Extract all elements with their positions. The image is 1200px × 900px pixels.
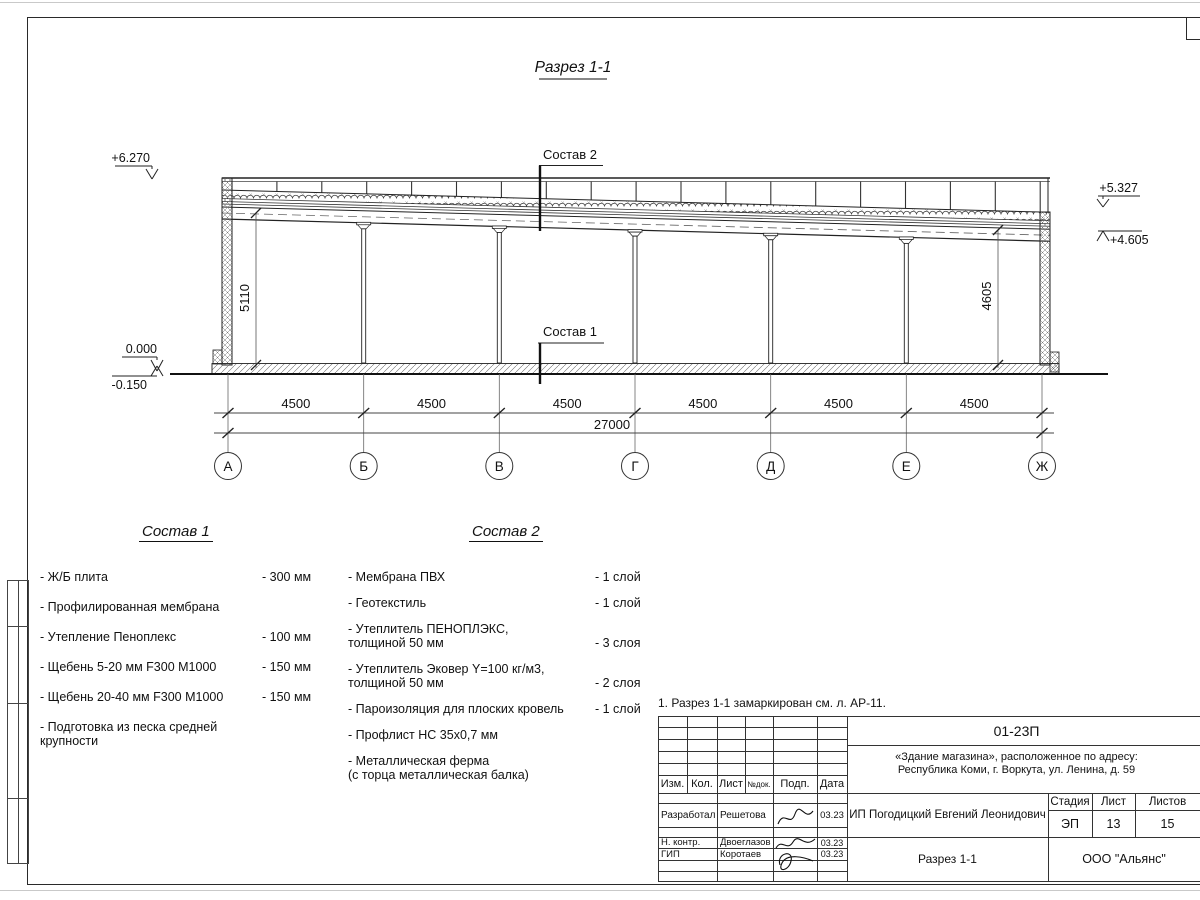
signature-developer: [778, 809, 813, 824]
tb-date-ncontr: 03.23: [817, 837, 847, 848]
tb-header-data: Дата: [817, 775, 847, 793]
item-value: - 150 мм: [262, 660, 311, 674]
total-dim: 27000: [594, 417, 630, 432]
column-capital: [628, 230, 642, 233]
axis-letter: Г: [631, 459, 639, 474]
tb-header-kol: Кол.: [687, 775, 717, 793]
left-wall: [222, 178, 232, 365]
list-item: - Металлическая ферма (с торца металличе…: [348, 754, 660, 782]
item-value: - 1 слой: [595, 702, 641, 716]
item-value: - 2 слоя: [595, 676, 640, 690]
item-value: - 3 слоя: [595, 636, 640, 650]
list-item: - Мембрана ПВХ- 1 слой: [348, 570, 660, 584]
line: [1097, 231, 1103, 241]
span-dim: 4500: [824, 396, 853, 411]
sostav2-callout: Состав 2: [543, 147, 597, 162]
list-item: - Подготовка из песка средней крупности: [40, 720, 330, 748]
line: [157, 366, 163, 376]
tb-doc-number: 01-23П: [847, 716, 1186, 745]
tb-object: «Здание магазина», расположенное по адре…: [847, 751, 1186, 791]
section-linework: Разрез 1-145004500450045004500450027000А…: [111, 59, 1148, 480]
span-dim: 4500: [688, 396, 717, 411]
column-capital-taper: [900, 239, 912, 243]
column-capital-taper: [493, 228, 505, 232]
title-block: Изм. Кол. Лист №док. Подп. Дата Разработ…: [658, 716, 1200, 882]
elevation: +4.605: [1110, 233, 1149, 247]
column: [362, 229, 366, 363]
list-item: - Утеплитель ПЕНОПЛЭКС, толщиной 50 мм- …: [348, 622, 660, 650]
list-item: - Утеплитель Эковер Y=100 кг/м3, толщино…: [348, 662, 660, 690]
item-name: - Утеплитель Эковер Y=100 кг/м3, толщино…: [348, 662, 595, 690]
tb-date-gip: 03.23: [817, 848, 847, 860]
tb-name-developer: Решетова: [717, 803, 776, 827]
elevation: 0.000: [126, 342, 157, 356]
tb-client: ИП Погодицкий Евгений Леонидович: [847, 793, 1048, 837]
left-wall-footing: [213, 350, 222, 364]
tb-section-name: Разрез 1-1: [847, 837, 1048, 881]
column: [497, 232, 501, 363]
line: [1097, 199, 1103, 207]
sostav1-callout: Состав 1: [543, 324, 597, 339]
height-dim: 5110: [237, 284, 252, 312]
column-capital-taper: [629, 232, 641, 236]
item-name: - Пароизоляция для плоских кровель: [348, 702, 595, 716]
tb-role-gip: ГИП: [658, 848, 720, 860]
list-item: - Профлист НС 35х0,7 мм: [348, 728, 660, 742]
height-dim: 4605: [979, 282, 994, 311]
tb-stage-label: Стадия: [1048, 793, 1092, 810]
axis-letter: Д: [766, 459, 775, 474]
list-item: - Пароизоляция для плоских кровель- 1 сл…: [348, 702, 660, 716]
axis-letter: Б: [359, 459, 368, 474]
list-item: - Утепление Пеноплекс- 100 мм: [40, 630, 330, 644]
item-value: - 300 мм: [262, 570, 311, 584]
drawing-note: 1. Разрез 1-1 замаркирован см. л. АР-11.: [658, 696, 886, 710]
tb-header-list: Лист: [717, 775, 745, 793]
floor-slab: [212, 364, 1059, 374]
column: [769, 240, 773, 363]
item-value: - 100 мм: [262, 630, 311, 644]
sostav1-heading: Состав 1: [139, 523, 213, 542]
item-name: - Утеплитель ПЕНОПЛЭКС, толщиной 50 мм: [348, 622, 595, 650]
item-name: - Щебень 20-40 мм F300 М1000: [40, 690, 262, 704]
signature-ncontr: [776, 839, 815, 848]
list-item: - Щебень 5-20 мм F300 М1000- 150 мм: [40, 660, 330, 674]
line: [146, 169, 152, 179]
column: [904, 243, 908, 363]
item-name: - Ж/Б плита: [40, 570, 262, 584]
axis-letter: Е: [902, 459, 911, 474]
tb-sheets-value: 15: [1135, 810, 1200, 837]
column-capital: [492, 226, 506, 229]
axis-letter: В: [495, 459, 504, 474]
list-item: - Профилированная мембрана: [40, 600, 330, 614]
list-item: - Щебень 20-40 мм F300 М1000- 150 мм: [40, 690, 330, 704]
tb-date-developer: 03.23: [817, 807, 847, 823]
item-name: - Геотекстиль: [348, 596, 595, 610]
line: [1103, 231, 1109, 241]
tb-header-izm: Изм.: [658, 775, 687, 793]
tb-sheet-value: 13: [1092, 810, 1135, 837]
tb-stage-value: ЭП: [1048, 810, 1092, 837]
signatures: [774, 803, 817, 879]
item-value: - 1 слой: [595, 596, 641, 610]
column-capital-taper: [765, 236, 777, 240]
sostav1-list: - Ж/Б плита- 300 мм - Профилированная ме…: [40, 570, 330, 764]
axis-letter: Ж: [1036, 459, 1049, 474]
item-name: - Мембрана ПВХ: [348, 570, 595, 584]
tb-role-ncontr: Н. контр.: [658, 837, 720, 848]
item-name: - Щебень 5-20 мм F300 М1000: [40, 660, 262, 674]
tb-object-line1: «Здание магазина», расположенное по адре…: [847, 751, 1186, 764]
tb-header-ndok: №док.: [745, 775, 773, 793]
item-name: - Профилированная мембрана: [40, 600, 262, 614]
span-dim: 4500: [960, 396, 989, 411]
sostav2-list: - Мембрана ПВХ- 1 слой - Геотекстиль- 1 …: [348, 570, 660, 794]
tb-sheet-label: Лист: [1092, 793, 1135, 810]
page-title: Разрез 1-1: [535, 59, 612, 76]
line: [152, 169, 158, 179]
item-name: - Утепление Пеноплекс: [40, 630, 262, 644]
list-item: - Геотекстиль- 1 слой: [348, 596, 660, 610]
item-name: - Профлист НС 35х0,7 мм: [348, 728, 595, 742]
item-name: - Подготовка из песка средней крупности: [40, 720, 262, 748]
tb-name-ncontr: Двоеглазов: [717, 837, 776, 848]
sostav2-heading: Состав 2: [469, 523, 543, 542]
axis-letter: А: [223, 459, 232, 474]
column-capital: [357, 222, 371, 225]
tb-name-gip: Коротаев: [717, 848, 776, 860]
tb-sheets-label: Листов: [1135, 793, 1200, 810]
line: [157, 360, 163, 371]
signature-gip: [779, 854, 813, 870]
line: [1103, 199, 1109, 207]
tb-object-line2: Республика Коми, г. Воркута, ул. Ленина,…: [847, 764, 1186, 777]
span-dim: 4500: [417, 396, 446, 411]
column-capital-taper: [358, 225, 370, 229]
list-item: - Ж/Б плита- 300 мм: [40, 570, 330, 584]
item-value: - 150 мм: [262, 690, 311, 704]
column-capital: [764, 233, 778, 236]
tb-role-developer: Разработал: [658, 803, 720, 827]
span-dim: 4500: [281, 396, 310, 411]
line: [151, 366, 157, 376]
right-wall: [1040, 212, 1050, 365]
item-value: - 1 слой: [595, 570, 641, 584]
column: [633, 236, 637, 363]
column-capital: [899, 237, 913, 240]
line: [151, 360, 157, 371]
span-dim: 4500: [553, 396, 582, 411]
elevation: +6.270: [111, 151, 150, 165]
elevation: -0.150: [112, 378, 147, 392]
item-name: - Металлическая ферма (с торца металличе…: [348, 754, 595, 782]
elevation: +5.327: [1099, 181, 1138, 195]
tb-header-podp: Подп.: [773, 775, 817, 793]
tb-company: ООО "Альянс": [1048, 837, 1200, 881]
